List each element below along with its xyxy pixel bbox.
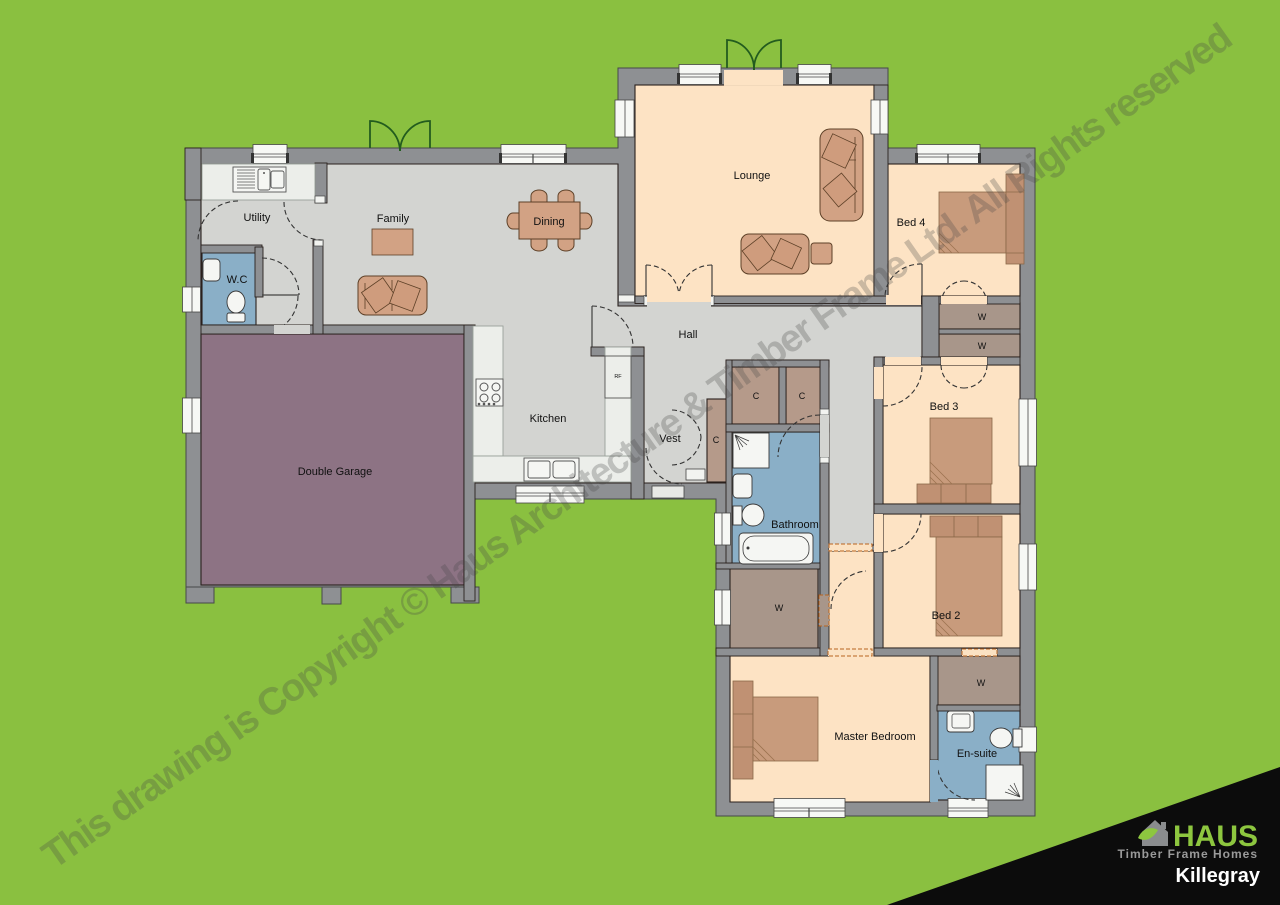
- svg-text:W.C: W.C: [227, 274, 248, 286]
- svg-text:Timber Frame Homes: Timber Frame Homes: [1118, 847, 1259, 861]
- svg-text:C: C: [753, 391, 760, 401]
- svg-text:Bed 2: Bed 2: [932, 610, 961, 622]
- svg-text:RF: RF: [614, 374, 622, 380]
- svg-text:Lounge: Lounge: [734, 170, 771, 182]
- svg-text:W: W: [978, 341, 987, 351]
- svg-text:C: C: [799, 391, 806, 401]
- svg-text:W: W: [775, 603, 784, 613]
- svg-text:Hall: Hall: [679, 329, 698, 341]
- svg-text:Utility: Utility: [244, 212, 271, 224]
- svg-text:Bed 3: Bed 3: [930, 401, 959, 413]
- svg-text:En-suite: En-suite: [957, 748, 997, 760]
- svg-text:Killegray: Killegray: [1176, 865, 1261, 887]
- svg-text:W: W: [978, 312, 987, 322]
- svg-text:Bathroom: Bathroom: [771, 519, 819, 531]
- svg-text:Double Garage: Double Garage: [298, 466, 373, 478]
- svg-text:C: C: [713, 435, 720, 445]
- svg-text:Dining: Dining: [533, 216, 564, 228]
- svg-text:Family: Family: [377, 213, 410, 225]
- svg-text:Kitchen: Kitchen: [530, 413, 567, 425]
- svg-text:Master Bedroom: Master Bedroom: [834, 731, 915, 743]
- svg-text:W: W: [977, 678, 986, 688]
